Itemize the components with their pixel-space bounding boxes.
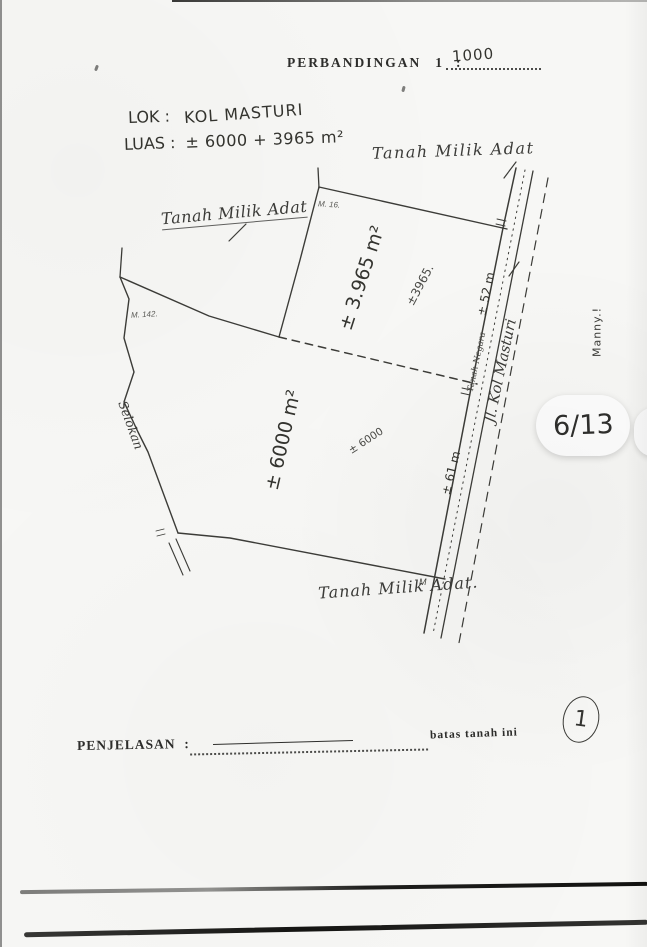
area-line: LUAS :± 6000 + 3965 m² [124,127,345,154]
bottom-scan-bar-1 [20,882,647,894]
scan-speck [94,65,99,72]
legend-dotted-line [190,738,428,756]
upper-frontage-length-label: ± 52 m [475,271,498,318]
lower-parcel-south-boundary [178,533,445,579]
parcel-divider-dashed-boundary [279,337,477,384]
scan-left-edge-artifact [0,0,2,947]
lower-parcel-north-boundary [120,277,279,337]
circled-number-value: 1 [572,706,589,733]
area-value: ± 6000 + 3965 m² [185,127,344,152]
upper-parcel-corner-tick [318,168,319,188]
lower-parcel-area-note: ± 6000 [346,425,385,456]
corner-tick-lower-left [156,529,165,536]
scale-header: PERBANDINGAN1: [287,55,463,71]
area-label: LUAS : [124,133,176,154]
label-tanah-milik-adat-left: Tanah Milik Adat [160,197,308,231]
margin-note-handwritten: Manny.! [591,307,604,357]
page-badge-sticker: 6/13 [536,395,630,456]
corner-tick-upper-right [496,219,506,226]
edge-sticker-partial [634,407,647,457]
label-tanah-milik-adat-top: Tanah Milik Adat [372,138,535,163]
legend-title: PENJELASAN : [77,736,190,754]
parcel-note-upper: M. 16. [318,199,341,210]
label-tanah-milik-adat-bottom: Tanah Milik Adat. [318,572,480,602]
page-badge-label: 6/13 [552,409,614,442]
upper-parcel-area-label: ± 3.965 m² [335,223,389,333]
upper-parcel-area-note: ±3965. [403,262,436,308]
road-top-slash [504,162,516,178]
location-label: LOK : [128,107,171,127]
scan-top-edge-artifact [172,0,647,2]
corner-mark-label: M [419,577,427,587]
legend-entry-text: batas tanah ini [430,726,518,741]
lower-parcel-corner-tick [120,248,122,277]
location-value: KOL MASTURI [183,100,303,127]
ditch-label: Selokan [115,399,146,452]
legend-title-text: PENJELASAN [77,736,176,753]
lower-frontage-length-label: ± 61 m [439,450,463,497]
scan-speck [401,86,405,93]
label-leader-slash [229,224,246,241]
parcel-note-left: M. 142. [131,309,158,319]
road-center-dotted-line [433,170,525,634]
lower-parcel-area-label: ± 6000 m² [261,388,305,493]
scale-value-handwritten: 1000 [451,45,494,66]
road-strip-label: Tanah Negara [466,331,488,393]
scanned-survey-document: PERBANDINGAN1: 1000 LOK :KOL MASTURI LUA… [0,0,647,947]
road-mid-slash [509,262,519,276]
location-line: LOK :KOL MASTURI [128,102,304,127]
upper-parcel-north-boundary [319,187,507,229]
corner-hatch-marks [169,539,190,575]
scale-ratio: 1 [435,55,444,70]
scale-label: PERBANDINGAN [287,55,421,70]
bottom-scan-bar-2 [24,920,647,938]
circled-number-annotation: 1 [558,692,604,746]
